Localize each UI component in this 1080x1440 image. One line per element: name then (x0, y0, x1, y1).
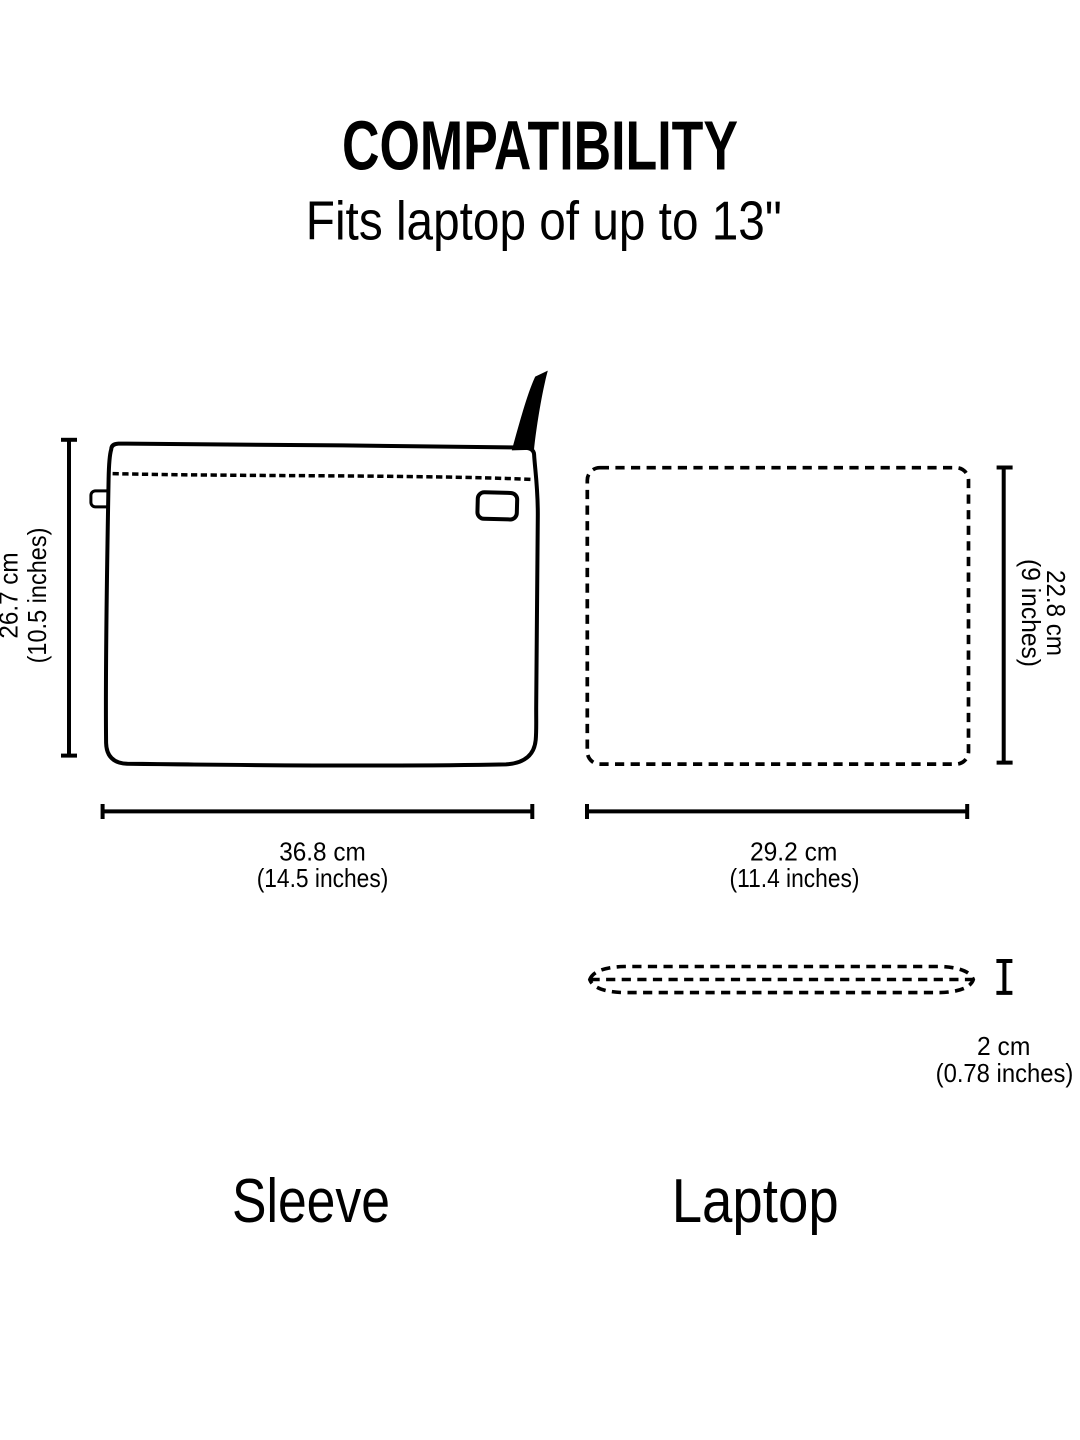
svg-text:(11.4 inches): (11.4 inches) (730, 863, 860, 893)
svg-text:(0.78 inches): (0.78 inches) (936, 1058, 1074, 1088)
svg-text:2 cm: 2 cm (977, 1031, 1030, 1061)
svg-text:COMPATIBILITY: COMPATIBILITY (342, 107, 738, 185)
svg-text:22.8 cm(9 inches): 22.8 cm(9 inches) (1016, 559, 1071, 667)
svg-text:Fits laptop of up to 13": Fits laptop of up to 13" (306, 190, 782, 252)
svg-text:Sleeve: Sleeve (232, 1167, 390, 1236)
svg-text:29.2 cm: 29.2 cm (750, 837, 838, 867)
svg-text:Laptop: Laptop (672, 1167, 839, 1236)
svg-text:(14.5 inches): (14.5 inches) (257, 863, 389, 893)
svg-text:36.8 cm: 36.8 cm (279, 837, 366, 867)
